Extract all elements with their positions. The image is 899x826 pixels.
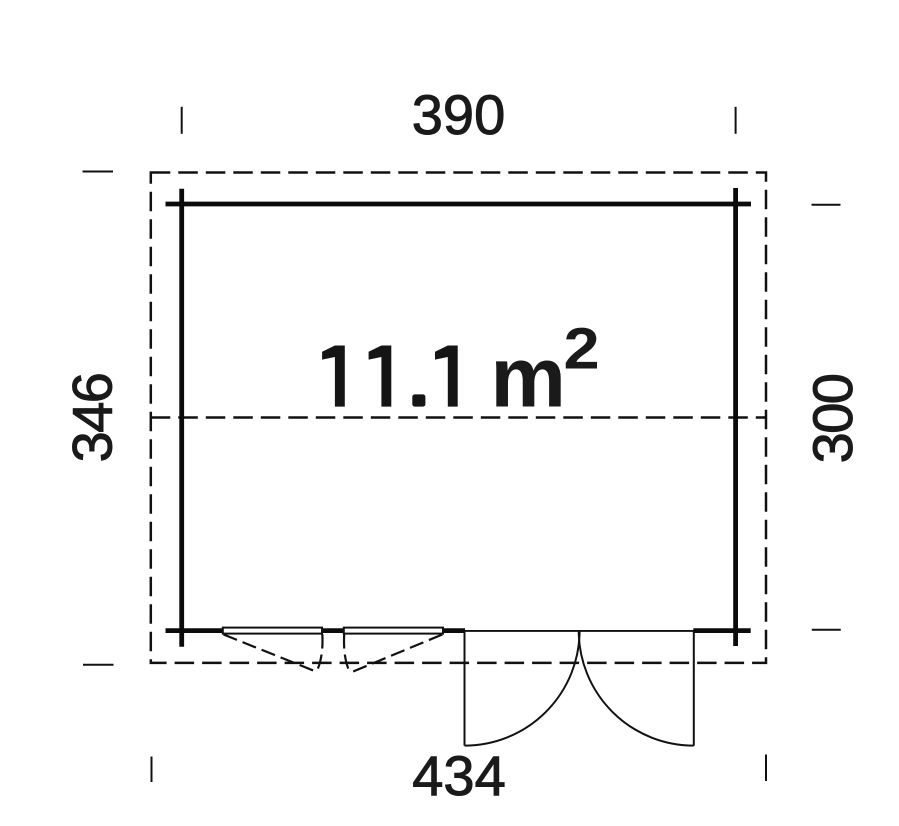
svg-text:346: 346 (61, 374, 124, 463)
svg-text:434: 434 (412, 744, 505, 807)
svg-text:2: 2 (564, 316, 600, 381)
svg-text:300: 300 (801, 375, 864, 464)
svg-text:390: 390 (412, 83, 505, 146)
svg-text:m: m (490, 331, 566, 426)
